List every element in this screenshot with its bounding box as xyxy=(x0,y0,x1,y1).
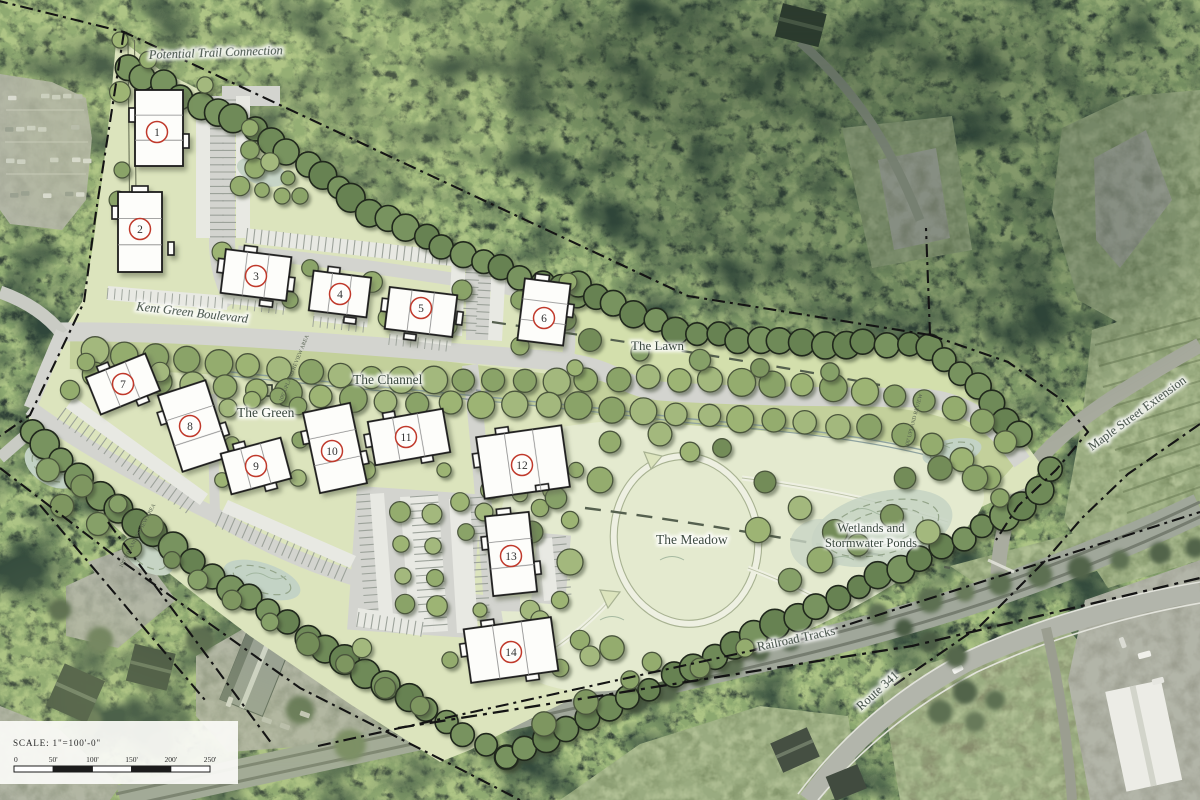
svg-text:1: 1 xyxy=(154,127,160,139)
svg-text:0: 0 xyxy=(14,755,18,764)
svg-text:7: 7 xyxy=(120,379,126,391)
svg-text:8: 8 xyxy=(187,421,193,433)
svg-text:The Channel: The Channel xyxy=(353,372,423,387)
svg-text:100': 100' xyxy=(86,755,99,764)
svg-text:Stormwater Ponds: Stormwater Ponds xyxy=(825,536,917,550)
svg-text:14: 14 xyxy=(505,647,517,659)
svg-text:6: 6 xyxy=(541,313,547,325)
svg-text:5: 5 xyxy=(418,303,424,315)
svg-text:3: 3 xyxy=(253,271,259,283)
svg-text:10: 10 xyxy=(326,446,338,458)
svg-text:SCALE: 1"=100'-0": SCALE: 1"=100'-0" xyxy=(13,738,101,748)
svg-text:Wetlands and: Wetlands and xyxy=(837,521,905,535)
svg-text:2: 2 xyxy=(137,224,143,236)
svg-text:12: 12 xyxy=(516,460,528,472)
svg-text:150': 150' xyxy=(125,755,138,764)
svg-text:200': 200' xyxy=(164,755,177,764)
svg-text:9: 9 xyxy=(253,461,259,473)
svg-text:The Green: The Green xyxy=(237,405,295,420)
svg-text:13: 13 xyxy=(505,551,517,563)
svg-text:11: 11 xyxy=(400,432,411,444)
svg-text:The Meadow: The Meadow xyxy=(656,532,728,547)
svg-text:4: 4 xyxy=(337,289,343,301)
svg-text:The Lawn: The Lawn xyxy=(631,338,685,353)
svg-text:50': 50' xyxy=(49,755,59,764)
svg-text:250': 250' xyxy=(204,755,217,764)
